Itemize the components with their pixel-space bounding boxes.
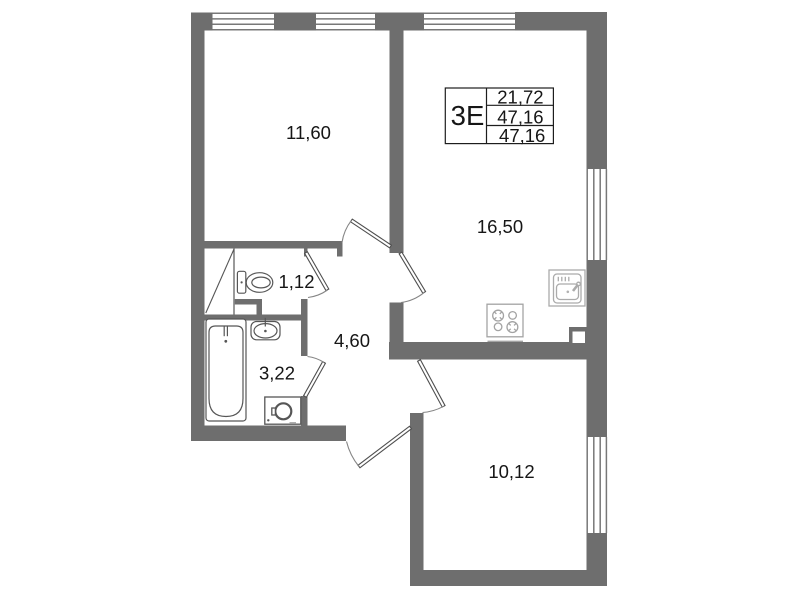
svg-text:1,12: 1,12 [278,271,314,292]
svg-text:4,60: 4,60 [334,330,370,351]
svg-text:11,60: 11,60 [286,122,331,143]
svg-text:10,12: 10,12 [488,461,534,482]
svg-text:16,50: 16,50 [477,216,523,237]
svg-text:47,16: 47,16 [499,125,545,146]
svg-text:3Е: 3Е [451,100,485,131]
svg-text:21,72: 21,72 [497,87,543,108]
svg-text:3,22: 3,22 [259,363,295,384]
